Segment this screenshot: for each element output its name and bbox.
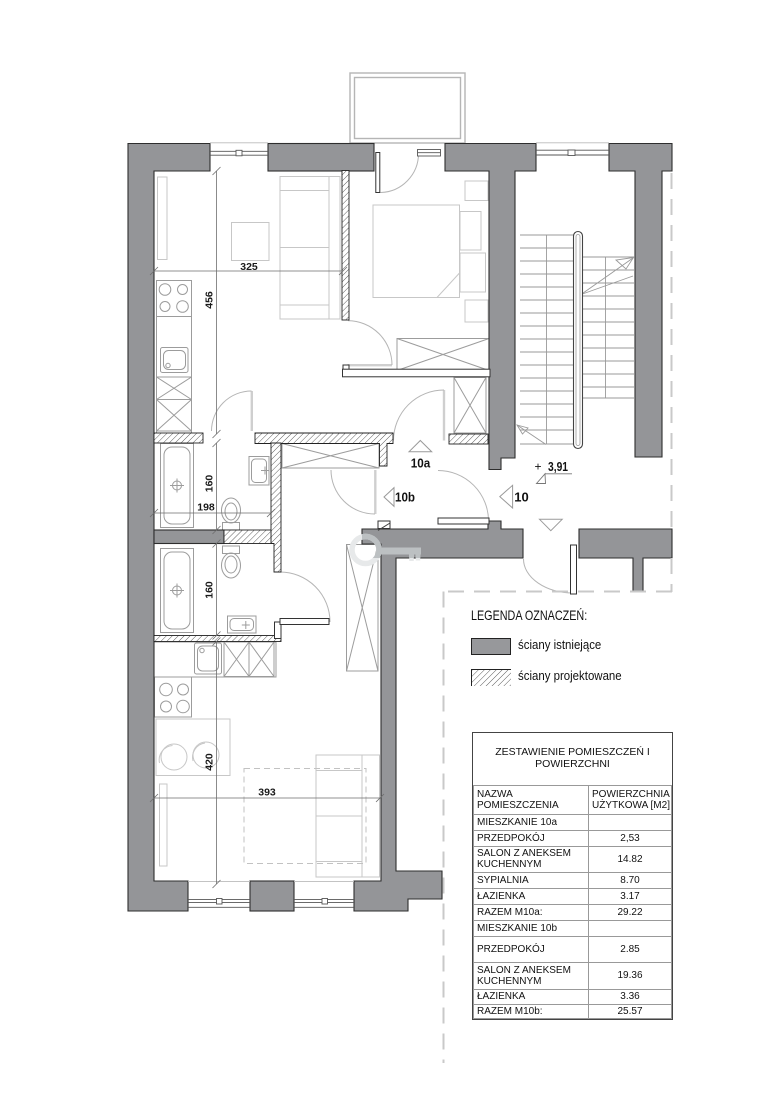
svg-text:160: 160 — [204, 581, 216, 599]
svg-text:10b: 10b — [395, 490, 415, 505]
svg-text:420: 420 — [204, 753, 216, 771]
svg-text:10a: 10a — [411, 456, 431, 471]
svg-text:+: + — [534, 460, 541, 474]
svg-text:198: 198 — [197, 502, 215, 514]
svg-text:325: 325 — [240, 261, 258, 273]
svg-text:3,91: 3,91 — [548, 459, 568, 474]
svg-text:393: 393 — [258, 787, 276, 799]
svg-text:160: 160 — [204, 475, 216, 493]
svg-text:10: 10 — [514, 490, 529, 505]
svg-text:456: 456 — [204, 291, 216, 309]
